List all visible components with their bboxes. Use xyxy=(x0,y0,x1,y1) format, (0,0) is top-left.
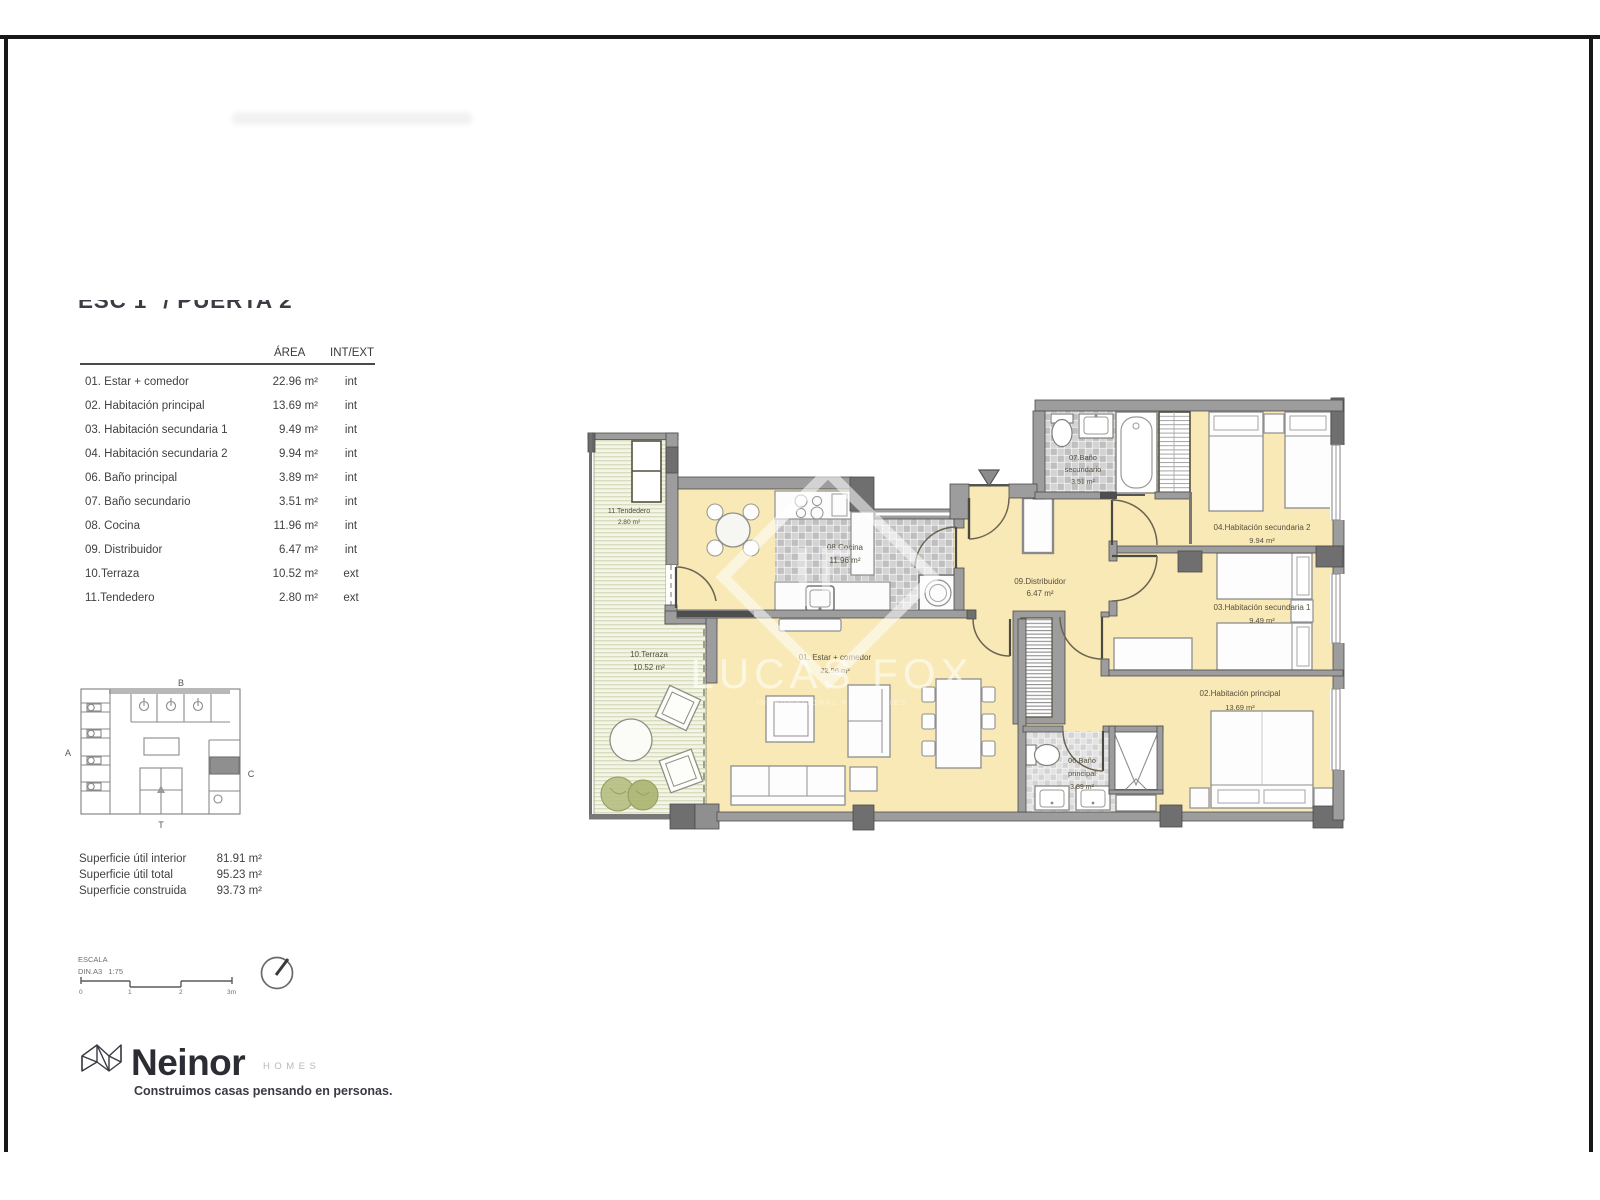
svg-text:10.52 m²: 10.52 m² xyxy=(633,663,665,672)
svg-text:9.49 m²: 9.49 m² xyxy=(1249,616,1275,625)
svg-text:03.Habitación secundaria 1: 03.Habitación secundaria 1 xyxy=(1214,603,1312,612)
svg-text:6.47 m²: 6.47 m² xyxy=(1026,589,1053,598)
svg-text:secundario: secundario xyxy=(1065,465,1102,474)
svg-text:06.Baño: 06.Baño xyxy=(1068,756,1096,765)
svg-text:3.89 m²: 3.89 m² xyxy=(1070,784,1094,791)
svg-text:principal: principal xyxy=(1068,769,1096,778)
svg-text:B: B xyxy=(178,678,184,688)
svg-text:2.80 m²: 2.80 m² xyxy=(618,519,641,526)
svg-text:07.Baño: 07.Baño xyxy=(1069,453,1097,462)
svg-text:LUCAS FOX: LUCAS FOX xyxy=(690,650,973,697)
svg-text:3.51 m²: 3.51 m² xyxy=(1071,479,1095,486)
svg-text:13.69 m²: 13.69 m² xyxy=(1225,703,1255,712)
svg-text:09.Distribuidor: 09.Distribuidor xyxy=(1014,577,1066,586)
svg-text:9.94 m²: 9.94 m² xyxy=(1249,536,1275,545)
svg-text:INTERNATIONAL PROPERTIES: INTERNATIONAL PROPERTIES xyxy=(757,700,907,707)
svg-text:02.Habitación principal: 02.Habitación principal xyxy=(1200,689,1281,698)
svg-text:10.Terraza: 10.Terraza xyxy=(630,650,668,659)
svg-text:04.Habitación secundaria 2: 04.Habitación secundaria 2 xyxy=(1214,523,1312,532)
svg-text:T: T xyxy=(158,820,164,830)
svg-text:11.96 m²: 11.96 m² xyxy=(830,556,861,565)
svg-text:11.Tendedero: 11.Tendedero xyxy=(608,508,650,515)
svg-text:C: C xyxy=(248,769,255,779)
svg-text:A: A xyxy=(65,748,71,758)
